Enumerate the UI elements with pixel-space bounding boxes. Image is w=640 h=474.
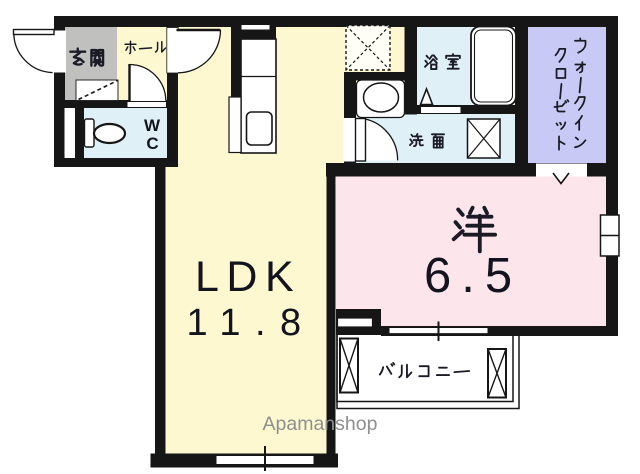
svg-text:6.5: 6.5 bbox=[424, 249, 522, 303]
svg-text:W: W bbox=[144, 116, 161, 135]
svg-text:11.8: 11.8 bbox=[187, 302, 316, 344]
svg-text:C: C bbox=[146, 134, 158, 153]
svg-text:LDK: LDK bbox=[195, 253, 301, 301]
svg-text:Apamanshop: Apamanshop bbox=[263, 413, 378, 435]
